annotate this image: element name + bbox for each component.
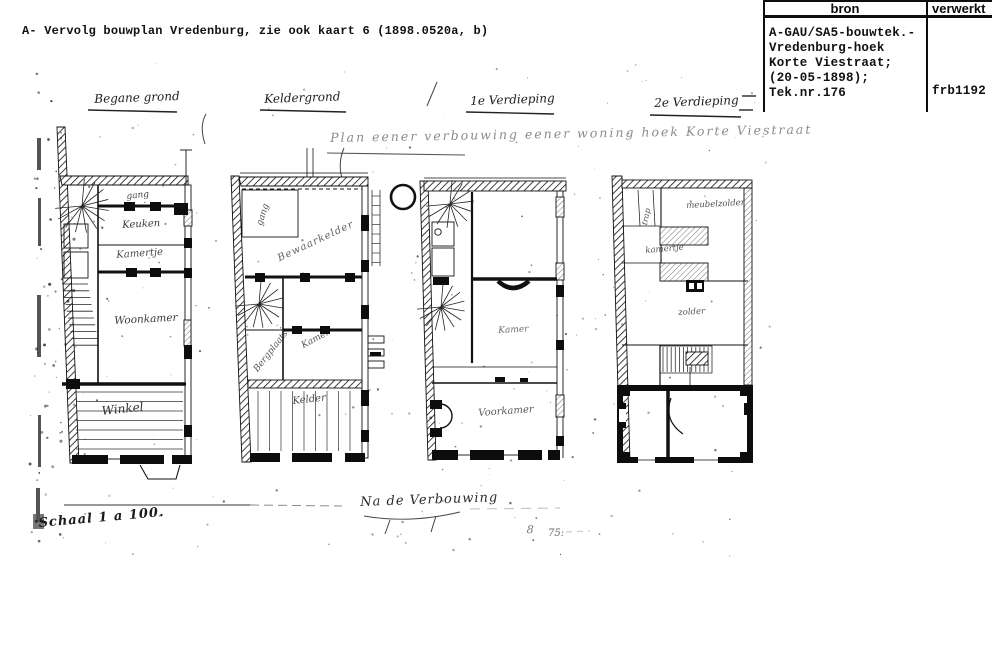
label-underlines [88,110,741,155]
scanned-document-page: A- Vervolg bouwplan Vredenburg, zie ook … [0,0,992,649]
plan-2e-verdieping [612,176,752,464]
plan-keldergrond [231,173,384,462]
plan-1e-verdieping [417,178,566,460]
scan-noise [29,63,771,557]
bottom-annotation-lines [64,505,590,534]
left-margin-smudge [33,138,44,529]
stray-marks [202,82,756,182]
punch-hole-ring [391,185,415,209]
plan-drawing-linework [0,0,992,649]
plan-begane-grond [55,127,192,479]
